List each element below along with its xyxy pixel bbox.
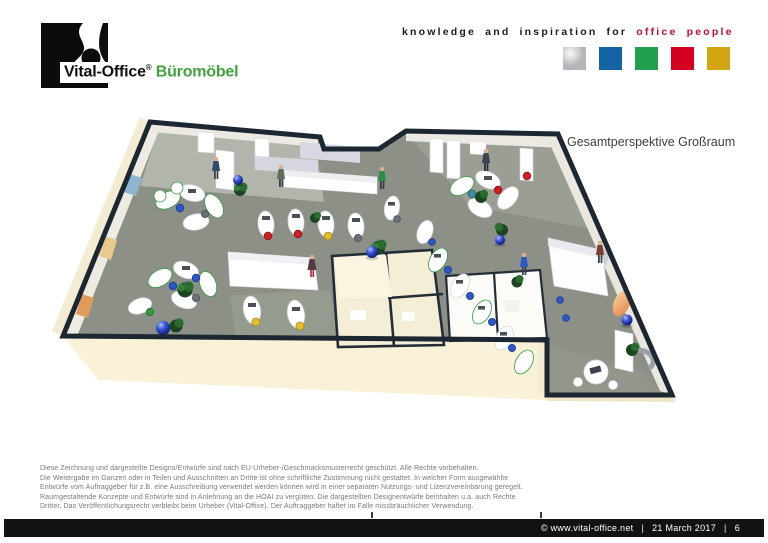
tagline-red: office people — [636, 26, 733, 38]
tagline-black: knowledge and inspiration for — [402, 26, 627, 38]
footer-copyright-url: © www.vital-office.net — [541, 523, 634, 533]
brand-product: Büromöbel — [156, 63, 239, 80]
slide-page: Vital-Office® Büromöbel knowledge and in… — [0, 0, 768, 543]
brand-wordmark: Vital-Office® Büromöbel — [60, 62, 242, 83]
legal-line: Diese Zeichnung und dargestellte Designs… — [40, 464, 523, 474]
footer-bar: © www.vital-office.net|21 March 2017|6 — [4, 519, 764, 537]
color-square-silver — [563, 47, 586, 70]
color-square-gold — [707, 47, 730, 70]
color-square-green — [635, 47, 658, 70]
brand-name: Vital-Office — [64, 63, 146, 80]
legal-line: Dritter. Das Veröffentlichungsrecht verb… — [40, 502, 523, 512]
legal-notice: Diese Zeichnung und dargestellte Designs… — [40, 464, 523, 512]
brand-color-squares — [563, 47, 730, 70]
crop-mark — [540, 512, 542, 518]
footer-date: 21 March 2017 — [652, 523, 716, 533]
legal-line: Die Weitergabe im Ganzen oder in Teilen … — [40, 474, 523, 484]
legal-line: Raumgestaltende Konzepte und Entwürfe si… — [40, 493, 523, 503]
crop-mark — [371, 512, 373, 518]
plan-caption: Gesamtperspektive Großraum — [567, 135, 735, 149]
brand-registered-mark: ® — [146, 63, 152, 72]
color-square-red — [671, 47, 694, 70]
footer-separator: | — [724, 523, 727, 533]
footer-page-number: 6 — [735, 523, 740, 533]
footer-separator: | — [641, 523, 644, 533]
tagline: knowledge and inspiration for office peo… — [402, 26, 734, 38]
legal-line: Entwürfe vom Auftraggeber für z.B. eine … — [40, 483, 523, 493]
color-square-blue — [599, 47, 622, 70]
